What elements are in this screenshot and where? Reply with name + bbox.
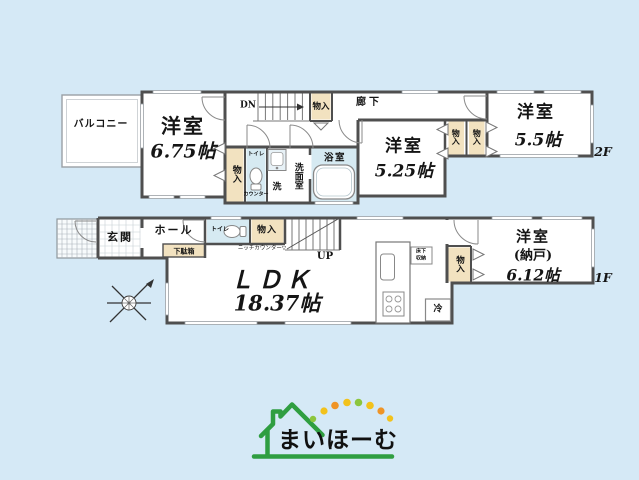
ldk-name: ＬＤＫ — [230, 268, 314, 292]
room-675-name: 洋室 — [161, 116, 205, 136]
niche-counter-label: ニッチカウンター▽ — [238, 246, 286, 252]
logo-dots — [310, 399, 393, 422]
balcony — [62, 95, 142, 167]
porch — [57, 219, 98, 258]
room-55-size: 5.5帖 — [515, 133, 562, 150]
underfloor-storage-label-1: 床下 — [416, 250, 426, 255]
storage-room-name: 洋室 — [516, 230, 550, 245]
floorplan-image: バルコニー 洋室 6.75帖 DN 物入 廊下 物入 トイレ カウンター 洗 洗… — [0, 0, 639, 480]
ldk-size: 18.37帖 — [234, 293, 321, 314]
floor1-label: 1F — [594, 272, 612, 285]
kitchen-counter-icon — [376, 242, 410, 323]
storage-room-sub: (納戸) — [514, 250, 552, 263]
washer-label: 洗 — [272, 184, 281, 193]
room-525-size: 5.25帖 — [375, 164, 433, 181]
bathtub-icon — [314, 165, 355, 199]
toilet-icon-2f — [250, 168, 262, 190]
bath-label: 浴室 — [324, 153, 346, 163]
closet-top-2f-label: 物入 — [312, 103, 329, 112]
toilet-counter-label: カウンター — [243, 193, 268, 198]
hallway-label: 廊下 — [356, 98, 382, 108]
underfloor-storage-label-2: 収納 — [416, 257, 426, 262]
closet-b-label: 物入 — [473, 129, 481, 145]
genkan-hall-opening — [141, 228, 144, 248]
compass-icon — [107, 279, 154, 322]
shoebox-label: 下駄箱 — [174, 247, 195, 254]
balcony-label: バルコニー — [74, 120, 129, 130]
closet-right-1f-label: 物入 — [455, 256, 464, 273]
washroom-label: 洗面室 — [292, 163, 301, 190]
stairs-down-label: DN — [240, 102, 256, 111]
fridge-label: 冷 — [433, 306, 442, 315]
storage-room-size: 6.12帖 — [506, 267, 559, 283]
entrance-label: 玄関 — [107, 232, 133, 243]
toilet-1f-label: トイレ — [211, 227, 229, 233]
closet-a-label: 物入 — [452, 129, 460, 145]
stairs-up-label: UP — [317, 252, 333, 262]
storage-room-opening — [446, 220, 449, 244]
closet-left-2f-label: 物入 — [230, 165, 239, 183]
floor2-label: 2F — [594, 146, 612, 159]
logo-text: まいほーむ — [278, 430, 398, 453]
room-525-name: 洋室 — [385, 139, 423, 156]
closet-top-1f-label: 物入 — [257, 227, 277, 236]
room-55-name: 洋室 — [517, 105, 555, 122]
vanity-icon — [268, 150, 286, 171]
room-675-size: 6.75帖 — [150, 143, 215, 162]
toilet-2f-label: トイレ — [248, 152, 265, 158]
hall-label: ホール — [155, 225, 194, 236]
